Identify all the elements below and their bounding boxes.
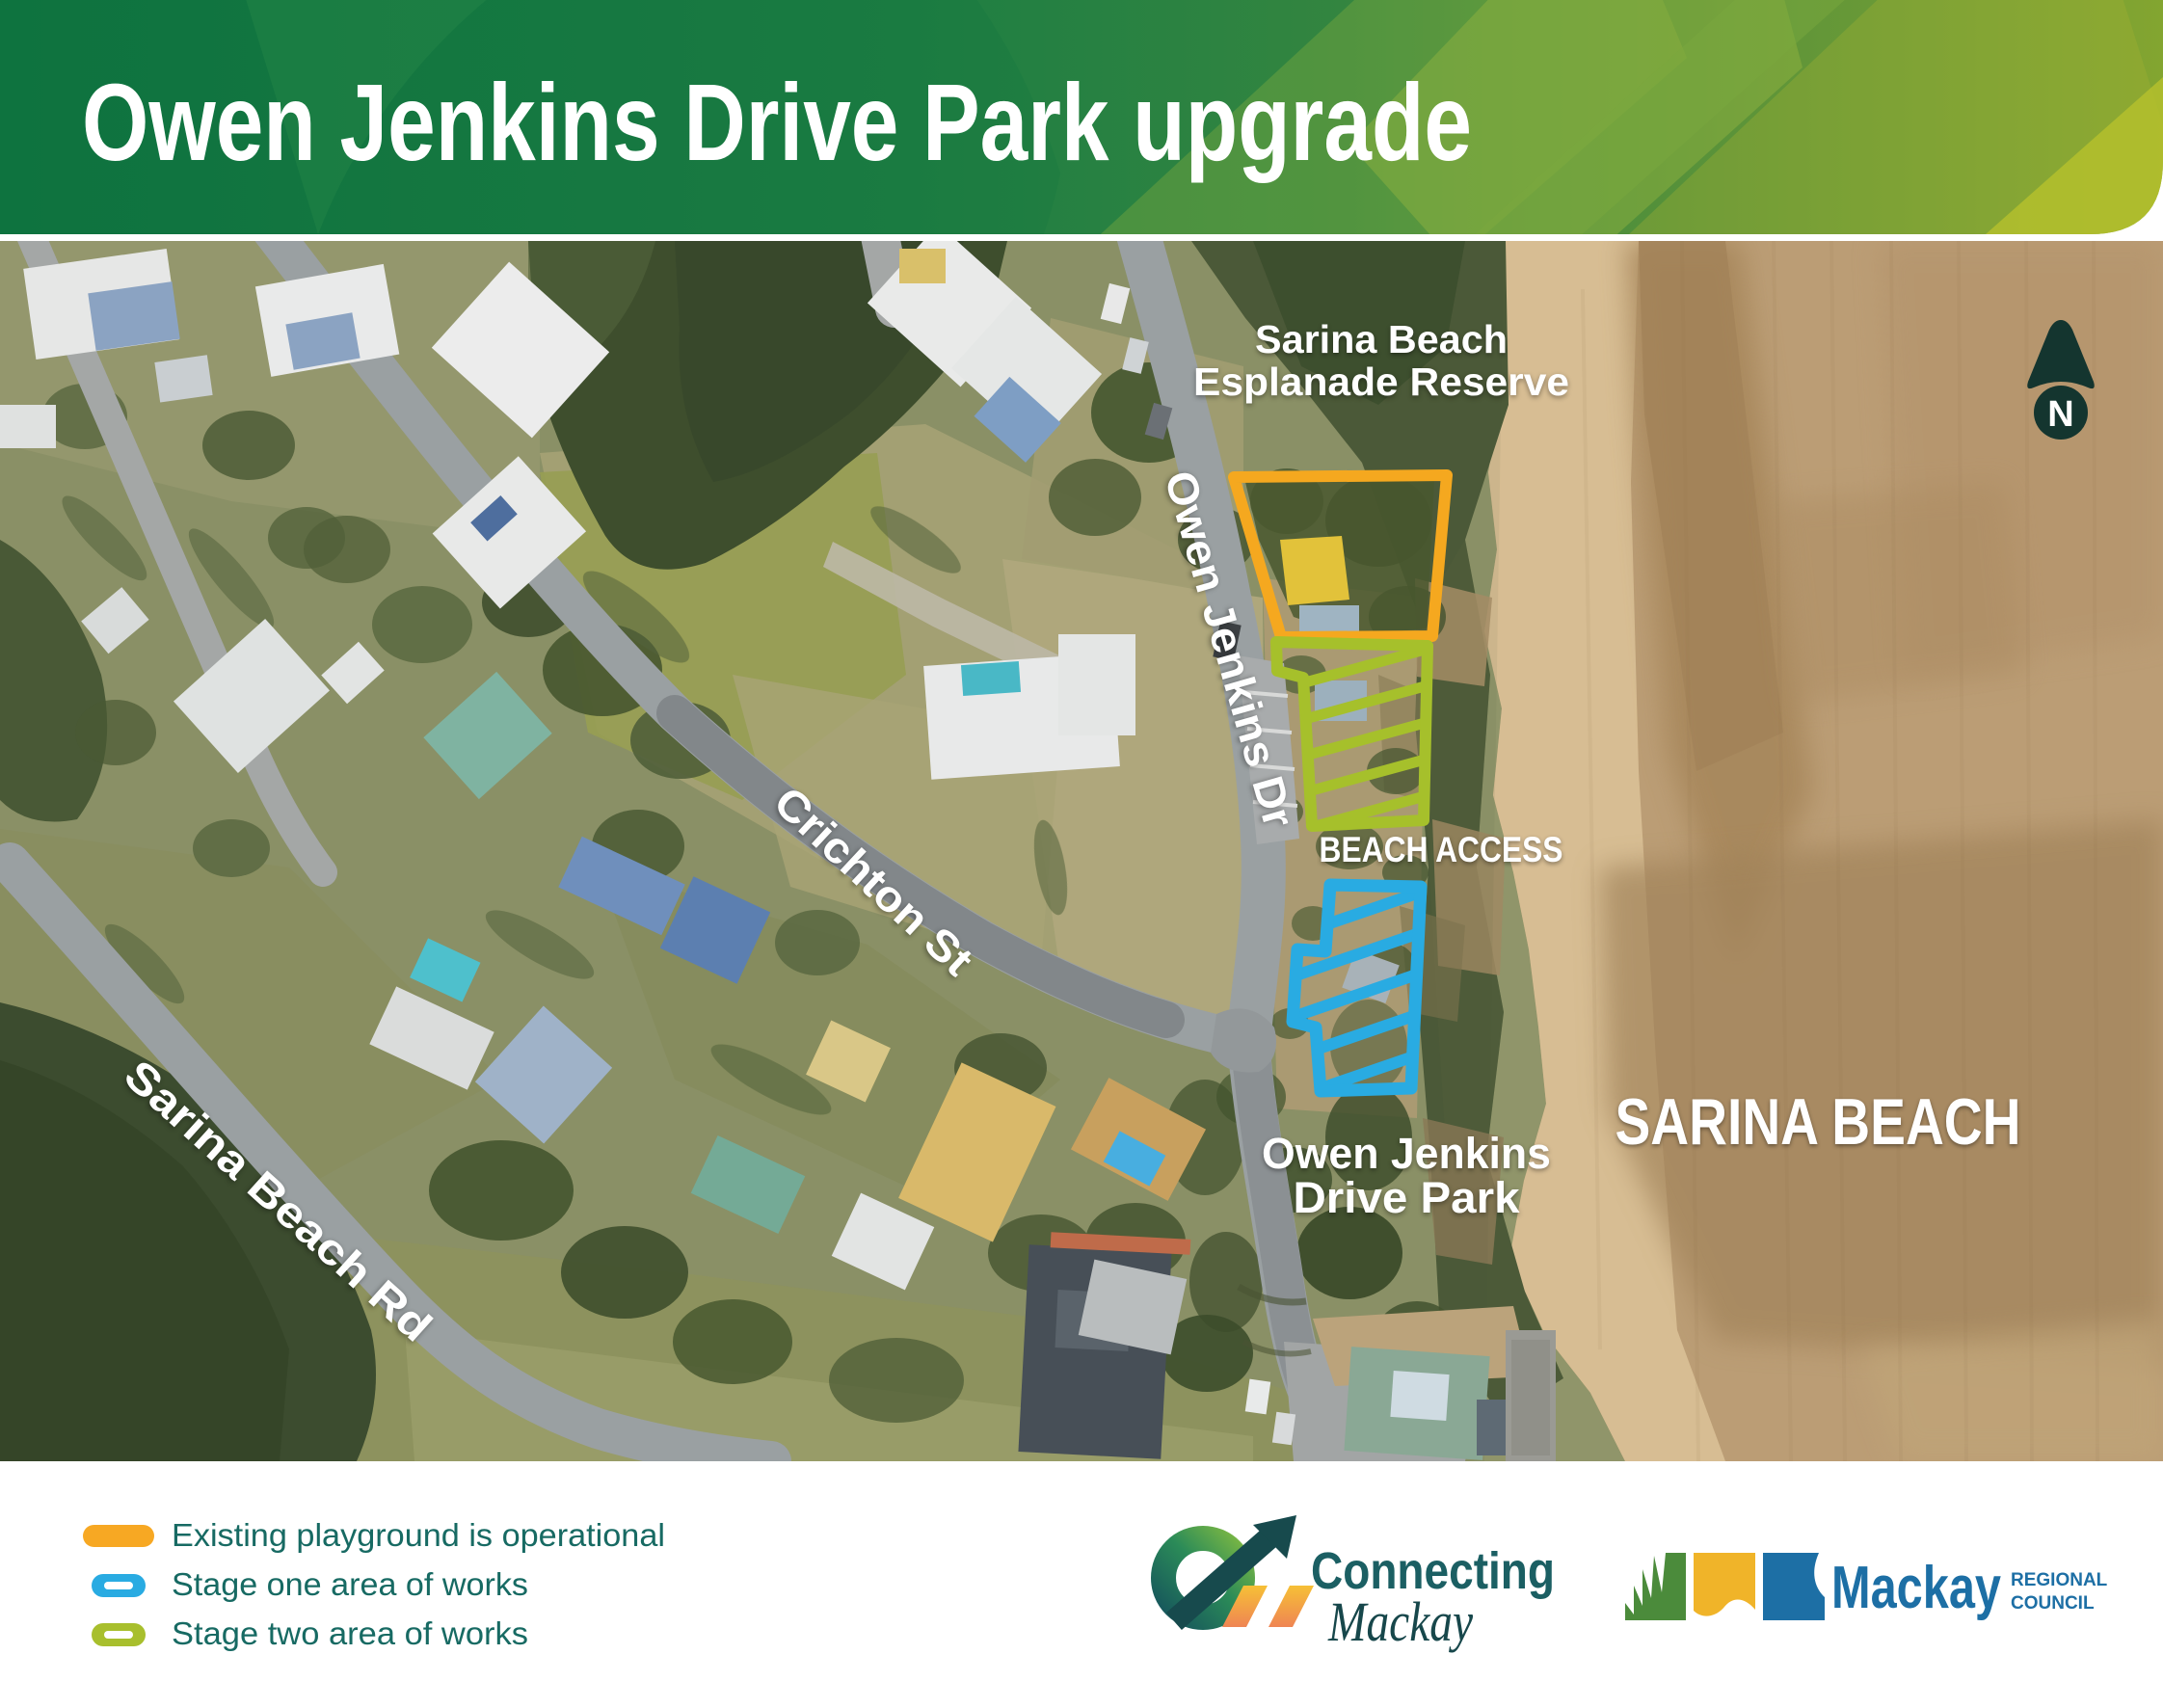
svg-text:N: N — [2047, 394, 2073, 435]
svg-text:REGIONAL: REGIONAL — [2011, 1570, 2108, 1590]
svg-text:Mackay: Mackay — [1327, 1590, 1473, 1653]
svg-text:Owen Jenkins Drive Park upgrad: Owen Jenkins Drive Park upgrade — [82, 62, 1472, 183]
svg-text:BEACH ACCESS: BEACH ACCESS — [1320, 830, 1563, 869]
svg-text:Mackay: Mackay — [1831, 1555, 2001, 1621]
svg-text:COUNCIL: COUNCIL — [2011, 1593, 2095, 1614]
svg-text:Owen Jenkins: Owen Jenkins — [1262, 1129, 1551, 1178]
svg-text:SARINA BEACH: SARINA BEACH — [1616, 1085, 2021, 1159]
svg-text:Drive Park: Drive Park — [1294, 1173, 1521, 1222]
svg-text:Sarina Beach: Sarina Beach — [1255, 317, 1508, 361]
svg-text:Stage two area of works: Stage two area of works — [172, 1615, 528, 1651]
svg-text:Existing playground is operati: Existing playground is operational — [172, 1517, 665, 1553]
svg-text:Esplanade Reserve: Esplanade Reserve — [1193, 360, 1569, 404]
svg-text:Stage one area of works: Stage one area of works — [172, 1566, 528, 1602]
